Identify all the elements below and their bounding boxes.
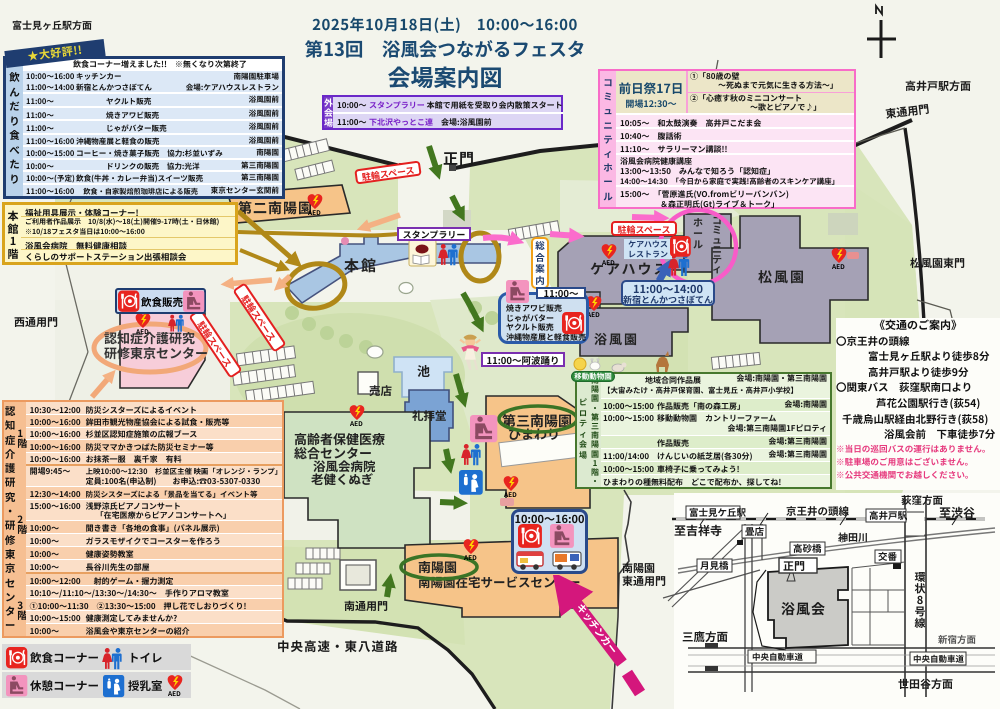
svg-text:交番: 交番	[878, 549, 898, 563]
svg-text:南通用門: 南通用門	[344, 598, 388, 614]
svg-text:AED: AED	[463, 552, 477, 562]
svg-text:AED: AED	[307, 207, 321, 217]
svg-text:AED: AED	[503, 489, 517, 499]
svg-text:西通用門: 西通用門	[14, 314, 58, 330]
svg-text:富士見ヶ丘駅方面: 富士見ヶ丘駅方面	[12, 17, 92, 32]
svg-text:中央自動車道: 中央自動車道	[752, 651, 804, 663]
svg-text:授乳室: 授乳室	[128, 678, 163, 694]
svg-text:松風園: 松風園	[758, 267, 806, 287]
svg-text:浴風園: 浴風園	[594, 329, 639, 348]
svg-text:神田川: 神田川	[838, 529, 868, 544]
svg-text:キッチンカー: キッチンカー	[574, 600, 622, 657]
svg-text:飲食販売: 飲食販売	[141, 295, 183, 310]
svg-text:荻窪方面: 荻窪方面	[901, 493, 943, 508]
svg-text:第二南陽園: 第二南陽園	[238, 198, 313, 218]
svg-text:中央高速・東八道路: 中央高速・東八道路	[277, 636, 399, 655]
svg-text:至渋谷: 至渋谷	[939, 504, 975, 521]
svg-text:高井戸駅: 高井戸駅	[869, 508, 908, 522]
svg-text:AED: AED	[601, 257, 615, 267]
svg-text:AED: AED	[349, 418, 363, 428]
svg-text:老健くぬぎ: 老健くぬぎ	[311, 469, 374, 488]
svg-text:コミュニティ: コミュニティ	[712, 212, 722, 276]
svg-text:休憩コーナー: 休憩コーナー	[30, 678, 99, 694]
svg-text:礼拝堂: 礼拝堂	[412, 408, 447, 424]
svg-text:東通用門: 東通用門	[885, 101, 931, 122]
svg-text:三鷹方面: 三鷹方面	[682, 629, 728, 645]
svg-text:浴風会: 浴風会	[781, 599, 826, 619]
svg-text:正門: 正門	[443, 148, 475, 169]
svg-text:中央自動車道: 中央自動車道	[913, 653, 965, 665]
svg-text:ホール: ホール	[693, 214, 703, 251]
svg-text:AED: AED	[831, 261, 845, 271]
svg-text:畳店: 畳店	[745, 524, 765, 538]
svg-text:松風園東門: 松風園東門	[910, 255, 965, 271]
svg-text:トイレ: トイレ	[128, 650, 163, 666]
svg-text:京王井の頭線: 京王井の頭線	[786, 504, 849, 519]
svg-text:高井戸駅方面: 高井戸駅方面	[905, 78, 971, 94]
svg-text:至吉祥寺: 至吉祥寺	[674, 522, 722, 539]
svg-text:世田谷方面: 世田谷方面	[898, 676, 953, 692]
svg-text:AED: AED	[167, 688, 181, 698]
svg-text:正門: 正門	[783, 558, 805, 574]
svg-text:売店: 売店	[369, 383, 392, 399]
svg-text:新宿方面: 新宿方面	[938, 632, 977, 646]
svg-text:本館: 本館	[344, 255, 378, 276]
svg-text:飲食コーナー: 飲食コーナー	[30, 650, 99, 666]
svg-text:月見橋: 月見橋	[700, 558, 729, 572]
svg-text:富士見ケ丘駅: 富士見ケ丘駅	[689, 505, 747, 519]
svg-text:高砂橋: 高砂橋	[793, 541, 822, 555]
svg-text:池: 池	[417, 361, 430, 380]
